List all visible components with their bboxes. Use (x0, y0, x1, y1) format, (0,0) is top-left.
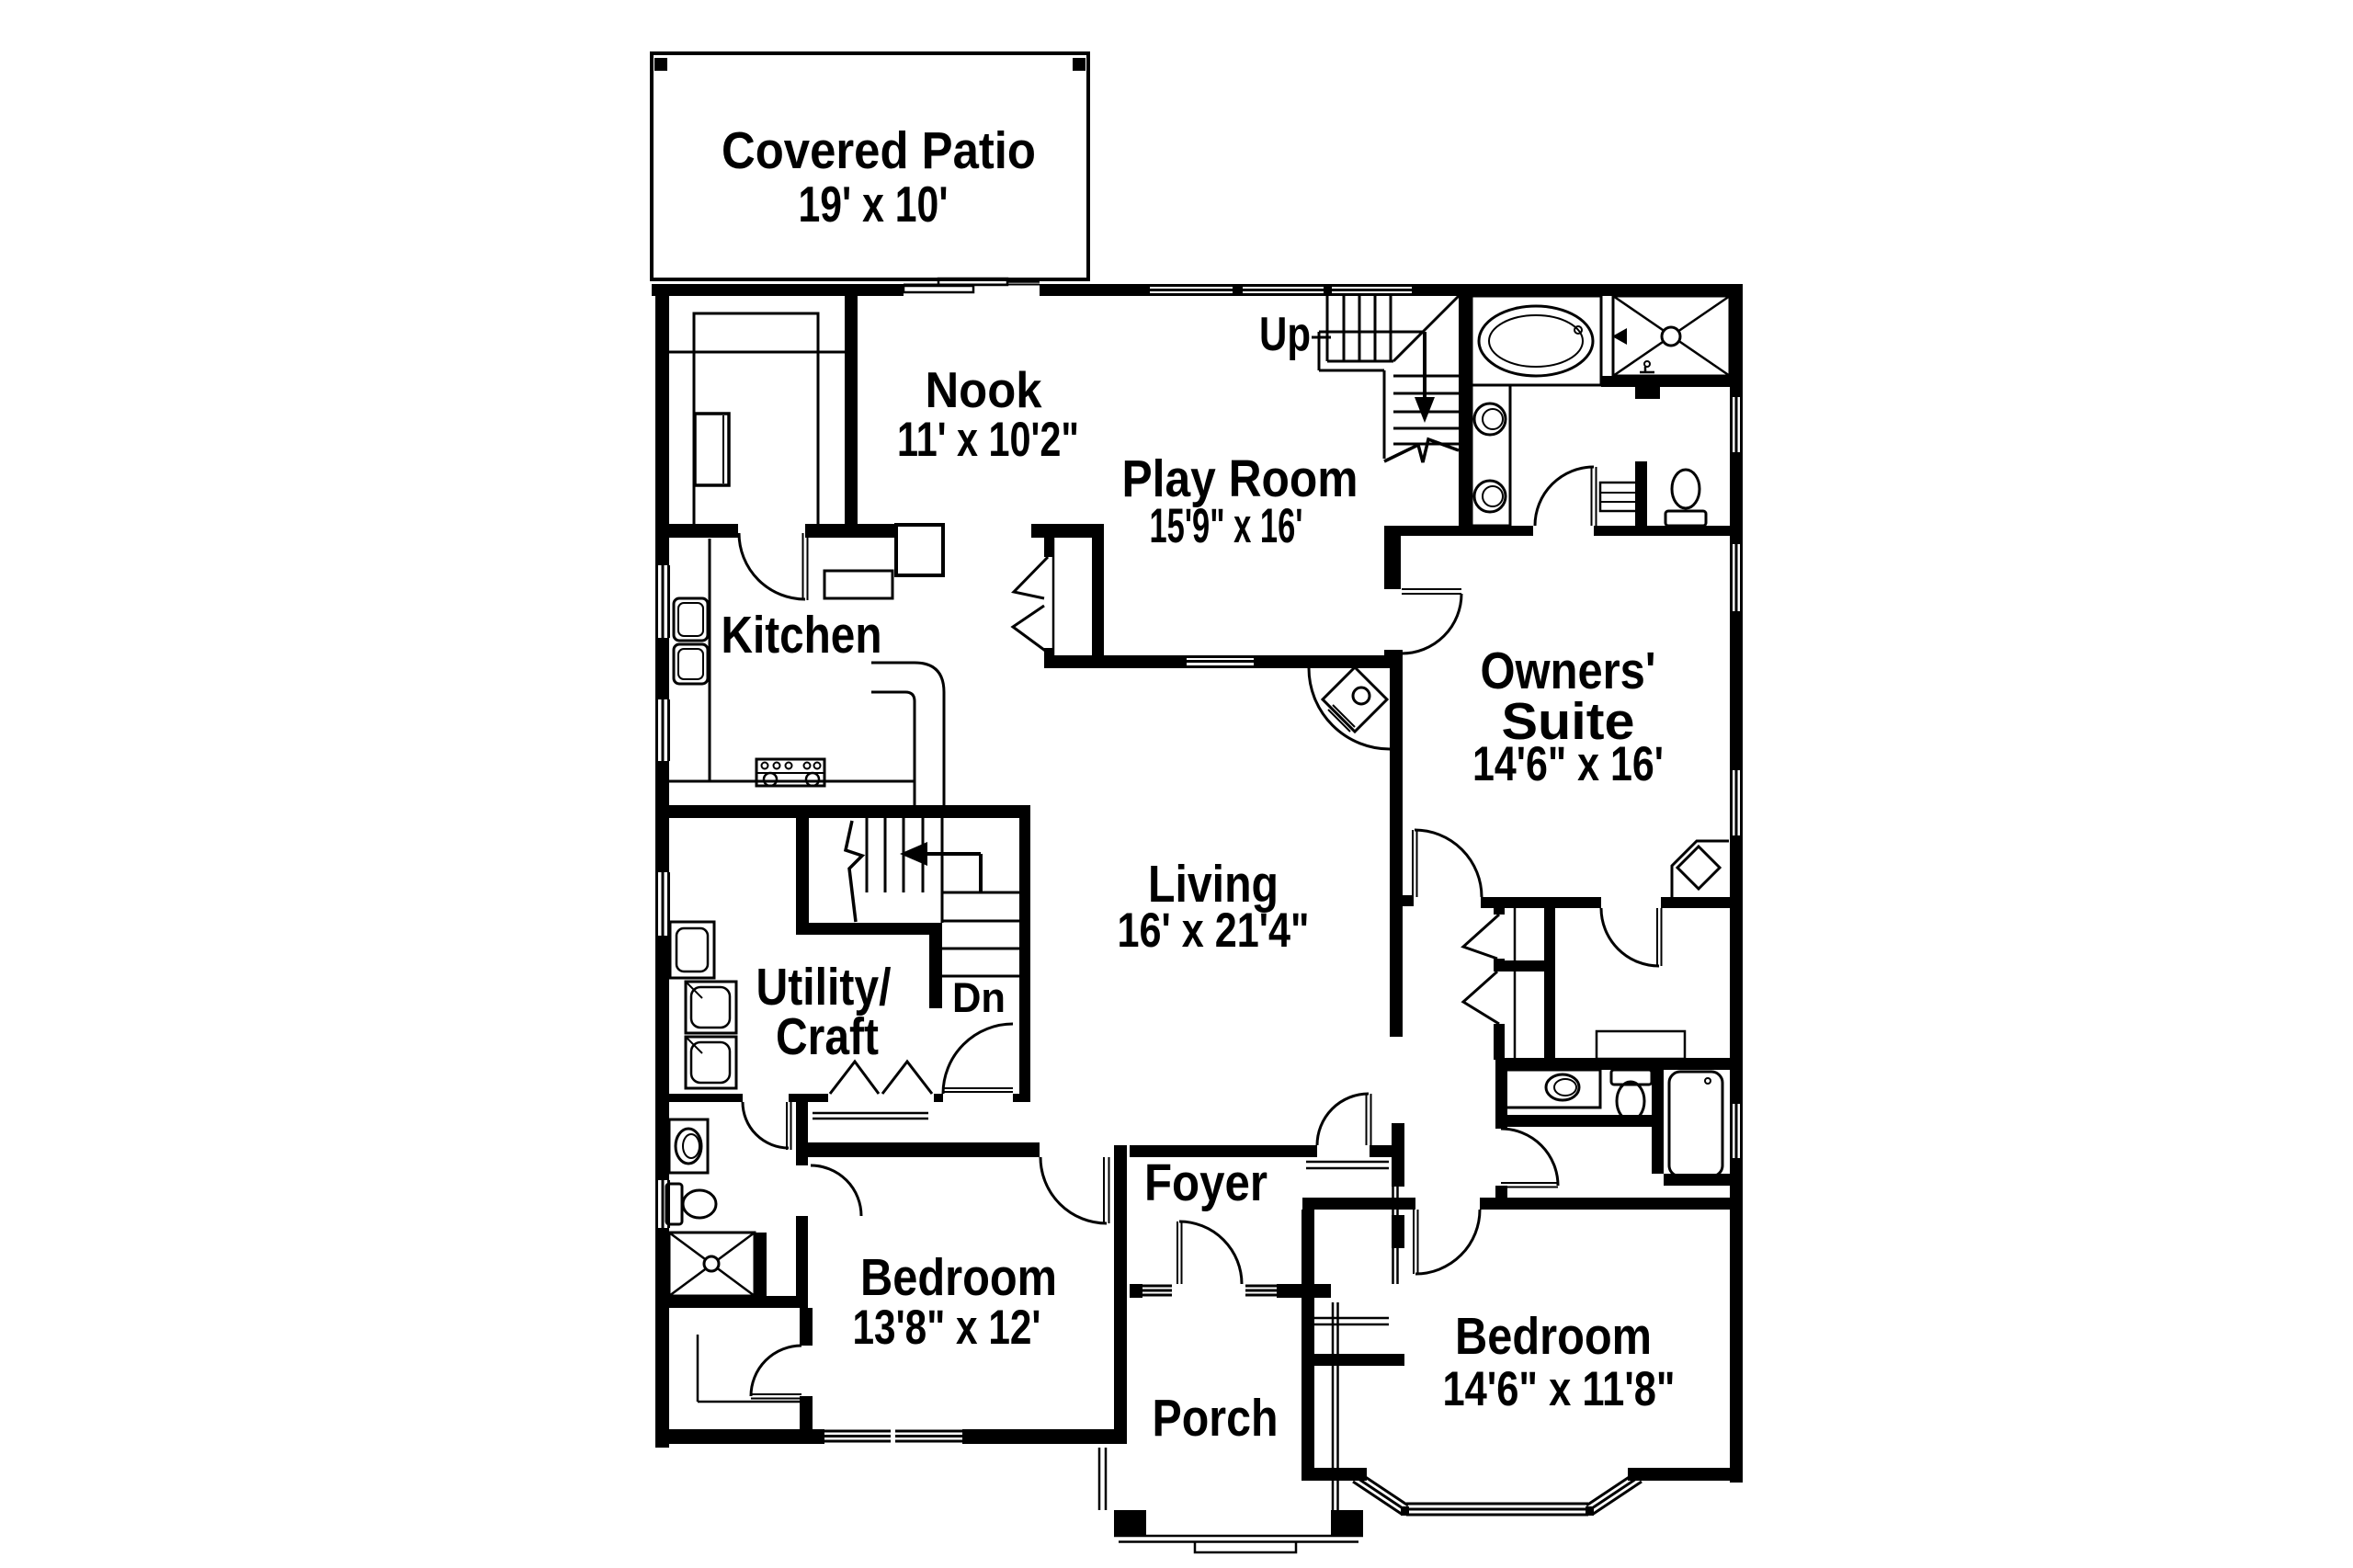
svg-text:Porch: Porch (1153, 1389, 1279, 1448)
svg-text:19' x 10': 19' x 10' (799, 176, 949, 233)
svg-text:Kitchen: Kitchen (722, 606, 882, 665)
svg-text:Craft: Craft (776, 1007, 879, 1066)
svg-text:Up: Up (1259, 308, 1311, 361)
svg-text:11' x 10'2": 11' x 10'2" (897, 413, 1079, 467)
svg-text:14'6" x 16': 14'6" x 16' (1472, 737, 1664, 791)
svg-text:Bedroom: Bedroom (860, 1248, 1057, 1307)
svg-text:14'6" x 11'8": 14'6" x 11'8" (1443, 1362, 1676, 1416)
svg-text:Nook: Nook (926, 361, 1042, 418)
svg-text:16' x 21'4": 16' x 21'4" (1118, 903, 1310, 958)
svg-text:15'9" x 16': 15'9" x 16' (1150, 499, 1303, 553)
svg-text:Covered Patio: Covered Patio (722, 121, 1036, 180)
svg-text:13'8" x 12': 13'8" x 12' (853, 1301, 1041, 1355)
svg-text:Dn: Dn (952, 974, 1006, 1021)
svg-text:Foyer: Foyer (1144, 1153, 1267, 1212)
svg-text:Bedroom: Bedroom (1455, 1307, 1652, 1366)
